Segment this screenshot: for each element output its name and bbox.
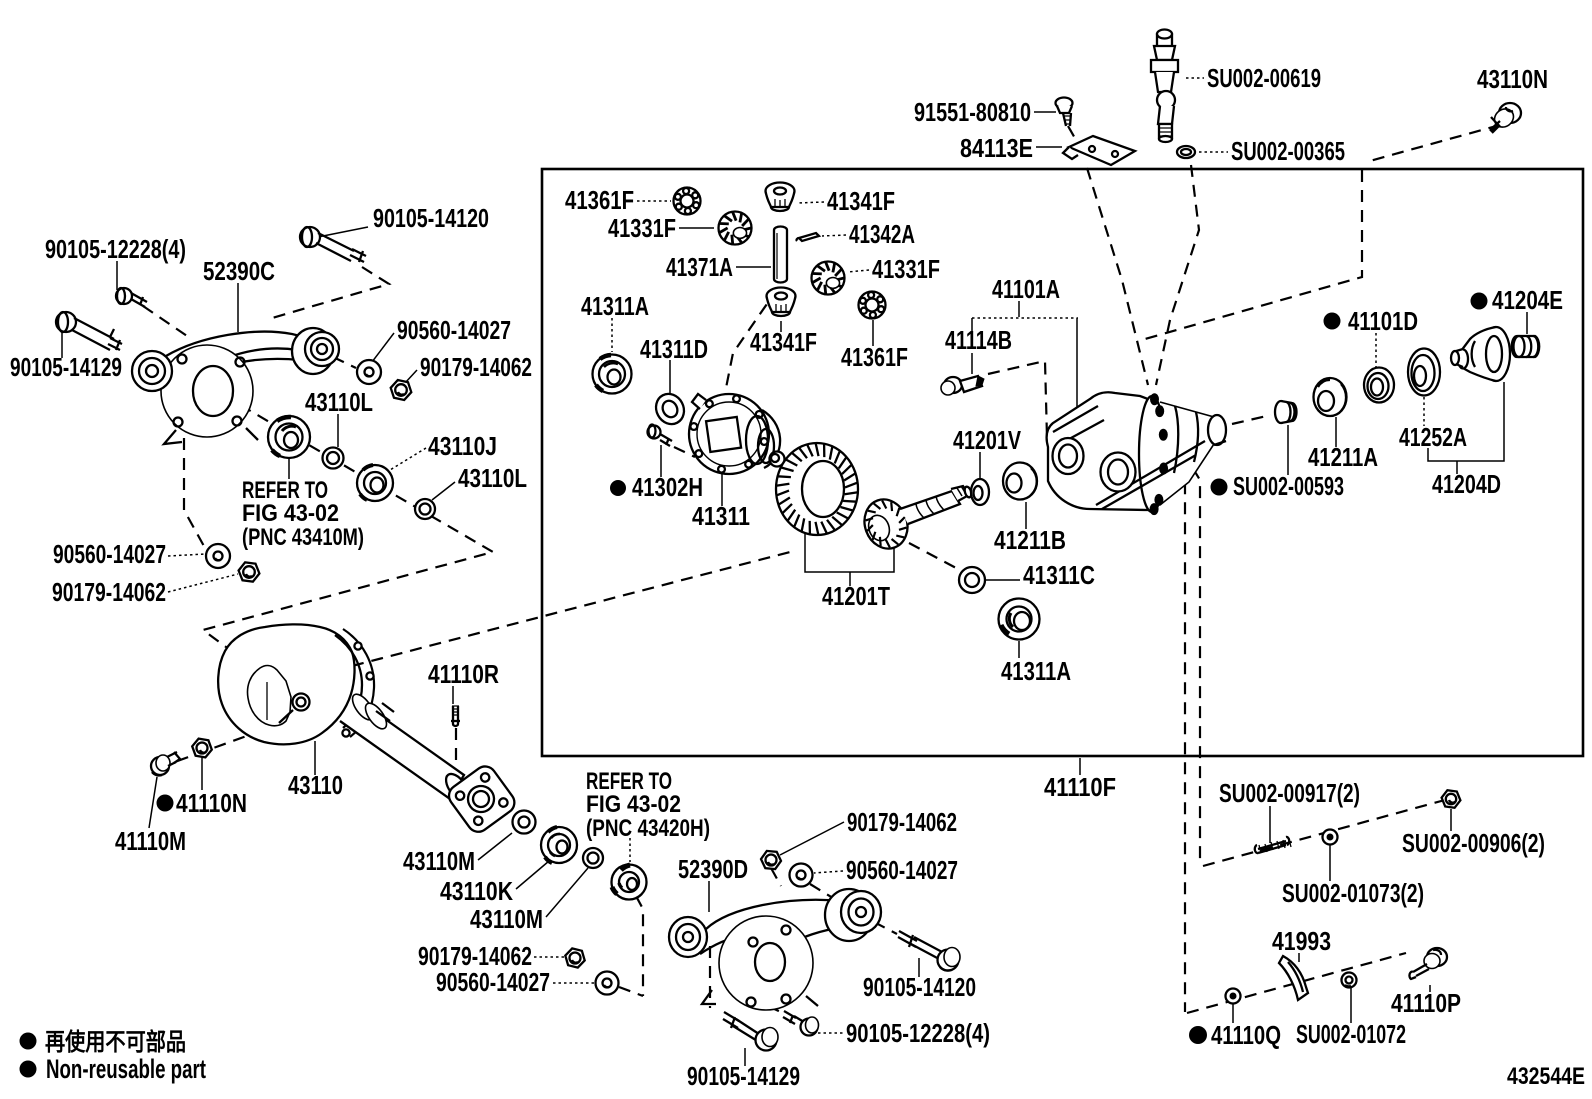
svg-text:41331F: 41331F bbox=[608, 213, 676, 243]
svg-text:90179-14062: 90179-14062 bbox=[847, 807, 957, 837]
svg-text:41201T: 41201T bbox=[822, 581, 890, 611]
svg-text:432544E: 432544E bbox=[1507, 1063, 1585, 1090]
svg-text:41101D: 41101D bbox=[1348, 306, 1418, 336]
svg-text:41361F: 41361F bbox=[565, 185, 634, 215]
svg-text:43110M: 43110M bbox=[403, 846, 475, 876]
svg-text:43110L: 43110L bbox=[305, 387, 373, 417]
svg-text:52390D: 52390D bbox=[678, 854, 748, 884]
svg-text:43110K: 43110K bbox=[440, 876, 513, 906]
svg-text:41110P: 41110P bbox=[1391, 988, 1461, 1018]
svg-text:90105-14120: 90105-14120 bbox=[373, 203, 489, 233]
svg-text:52390C: 52390C bbox=[203, 256, 275, 286]
svg-text:41204E: 41204E bbox=[1492, 285, 1563, 315]
svg-text:90105-12228(4): 90105-12228(4) bbox=[45, 234, 186, 264]
svg-text:41110F: 41110F bbox=[1044, 772, 1116, 802]
svg-text:41331F: 41331F bbox=[872, 254, 940, 284]
svg-text:41341F: 41341F bbox=[750, 327, 817, 357]
svg-text:43110: 43110 bbox=[288, 770, 343, 800]
svg-text:41311C: 41311C bbox=[1023, 560, 1095, 590]
svg-text:90179-14062: 90179-14062 bbox=[420, 352, 532, 382]
svg-text:41204D: 41204D bbox=[1432, 469, 1501, 499]
svg-text:41201V: 41201V bbox=[953, 425, 1021, 455]
svg-text:41110M: 41110M bbox=[115, 826, 186, 856]
svg-text:41114B: 41114B bbox=[945, 325, 1012, 355]
svg-text:41311A: 41311A bbox=[581, 291, 649, 321]
svg-text:SU002-01073(2): SU002-01073(2) bbox=[1282, 878, 1424, 908]
svg-text:43110J: 43110J bbox=[428, 431, 497, 461]
svg-text:41211A: 41211A bbox=[1308, 442, 1378, 472]
svg-text:41302H: 41302H bbox=[632, 472, 703, 502]
svg-text:Non-reusable part: Non-reusable part bbox=[46, 1054, 206, 1084]
svg-text:41110R: 41110R bbox=[428, 659, 499, 689]
svg-text:(PNC 43420H): (PNC 43420H) bbox=[586, 815, 710, 842]
svg-text:41361F: 41361F bbox=[841, 342, 908, 372]
svg-text:90105-14120: 90105-14120 bbox=[863, 972, 976, 1002]
svg-text:SU002-00906(2): SU002-00906(2) bbox=[1402, 828, 1545, 858]
svg-text:41993: 41993 bbox=[1272, 926, 1331, 956]
svg-text:SU002-00917(2): SU002-00917(2) bbox=[1219, 778, 1360, 808]
svg-text:91551-80810: 91551-80810 bbox=[914, 97, 1031, 127]
svg-text:90560-14027: 90560-14027 bbox=[436, 967, 550, 997]
svg-text:43110N: 43110N bbox=[1477, 64, 1548, 94]
svg-text:41341F: 41341F bbox=[827, 186, 895, 216]
svg-text:41311: 41311 bbox=[692, 501, 750, 531]
svg-text:90179-14062: 90179-14062 bbox=[52, 577, 166, 607]
svg-text:90105-14129: 90105-14129 bbox=[10, 352, 122, 382]
svg-text:41342A: 41342A bbox=[849, 219, 915, 249]
svg-text:SU002-00593: SU002-00593 bbox=[1233, 471, 1344, 501]
svg-text:90560-14027: 90560-14027 bbox=[53, 539, 166, 569]
svg-text:90560-14027: 90560-14027 bbox=[397, 315, 511, 345]
svg-text:43110L: 43110L bbox=[458, 463, 527, 493]
svg-text:SU002-00365: SU002-00365 bbox=[1231, 136, 1345, 166]
svg-text:90105-12228(4): 90105-12228(4) bbox=[846, 1018, 990, 1048]
svg-text:FIG 43-02: FIG 43-02 bbox=[242, 500, 339, 527]
svg-text:SU002-00619: SU002-00619 bbox=[1207, 63, 1321, 93]
svg-text:90105-14129: 90105-14129 bbox=[687, 1061, 800, 1091]
svg-text:41311D: 41311D bbox=[640, 334, 708, 364]
svg-text:再使用不可部品: 再使用不可部品 bbox=[45, 1028, 186, 1056]
svg-text:41311A: 41311A bbox=[1001, 656, 1071, 686]
svg-text:90560-14027: 90560-14027 bbox=[846, 855, 958, 885]
svg-text:41101A: 41101A bbox=[992, 274, 1060, 304]
svg-text:FIG 43-02: FIG 43-02 bbox=[586, 791, 681, 818]
svg-text:(PNC 43410M): (PNC 43410M) bbox=[242, 524, 364, 551]
svg-text:41211B: 41211B bbox=[994, 525, 1066, 555]
svg-text:41371A: 41371A bbox=[666, 252, 733, 282]
svg-text:SU002-01072: SU002-01072 bbox=[1296, 1019, 1406, 1049]
svg-text:41110Q: 41110Q bbox=[1211, 1020, 1281, 1050]
svg-text:41252A: 41252A bbox=[1399, 422, 1467, 452]
svg-text:43110M: 43110M bbox=[470, 904, 543, 934]
svg-text:84113E: 84113E bbox=[960, 133, 1033, 163]
svg-text:41110N: 41110N bbox=[176, 788, 247, 818]
